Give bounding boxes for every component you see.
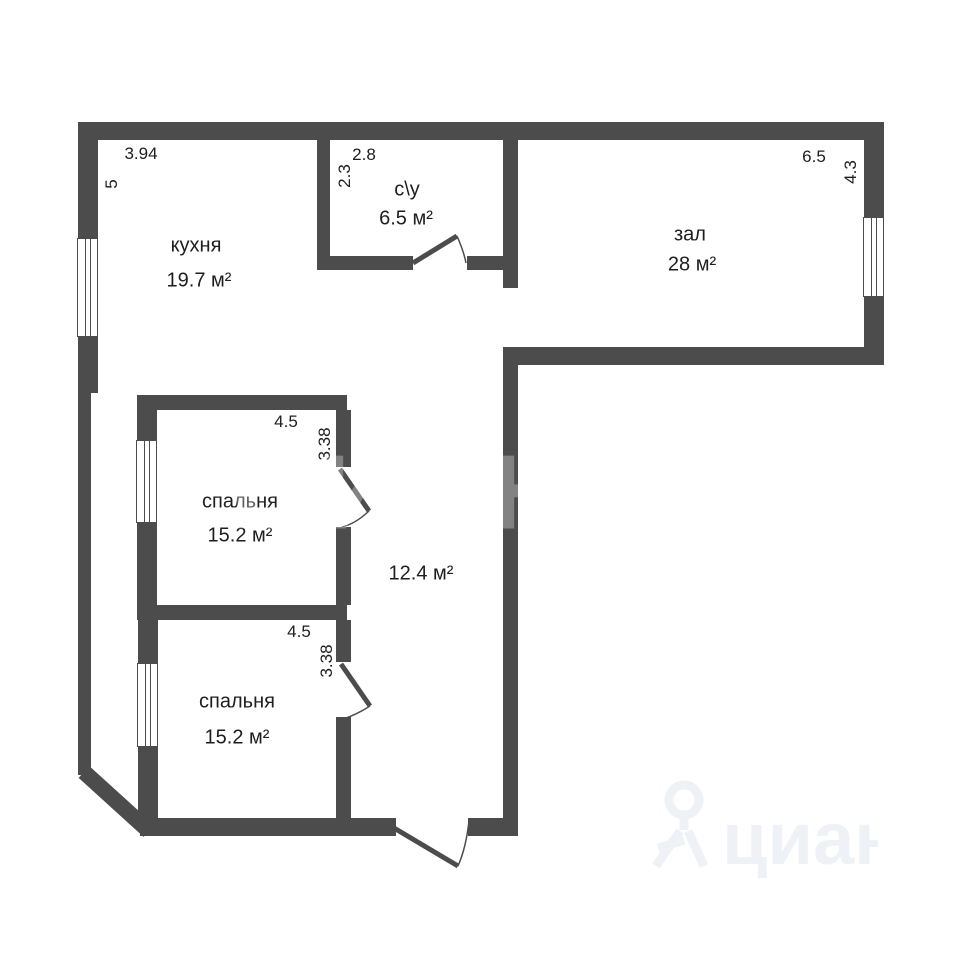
doors-and-diagonal-layer bbox=[0, 0, 960, 960]
floor-plan: 3.94 5 кухня 19.7 м² 2.8 2.3 с\у 6.5 м² … bbox=[0, 0, 960, 960]
wall-diagonal-bottom-left bbox=[84, 772, 149, 831]
bathroom-door-swing-icon bbox=[413, 236, 466, 263]
bedroom2-door-swing-icon bbox=[341, 664, 370, 719]
entrance-door-swing-icon bbox=[394, 821, 469, 866]
bedroom1-door-swing-icon bbox=[340, 469, 369, 527]
